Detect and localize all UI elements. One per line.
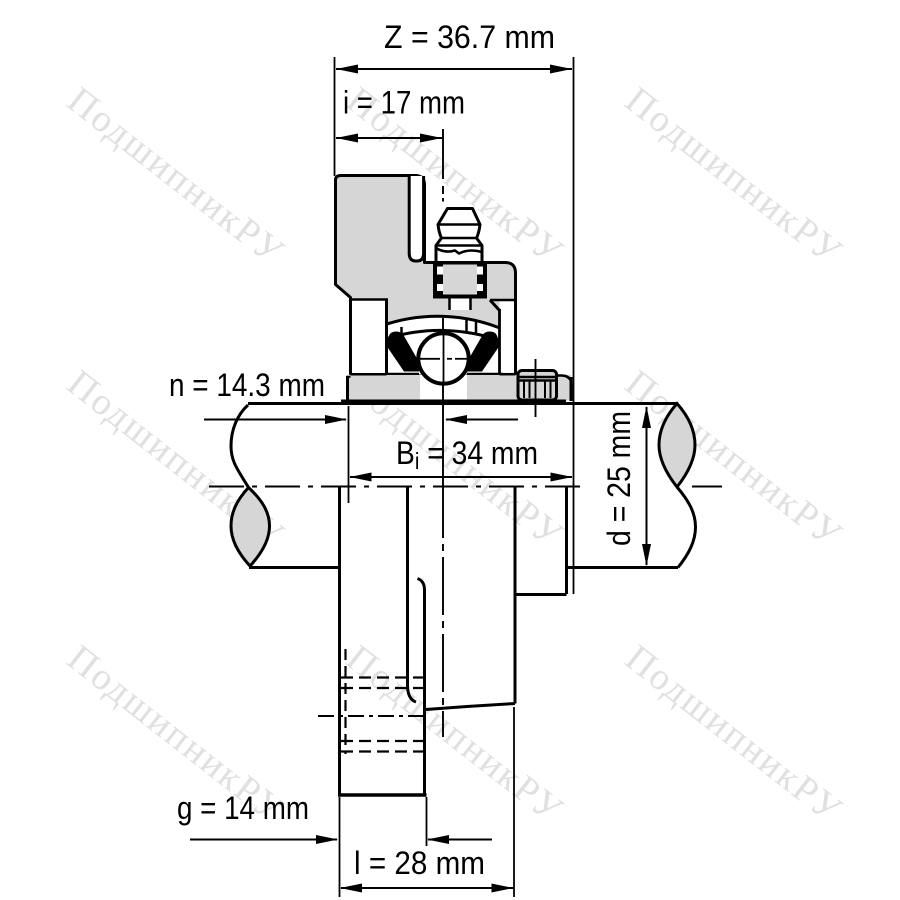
svg-text:Z = 36.7 mm: Z = 36.7 mm [384, 19, 555, 55]
svg-text:g = 14 mm: g = 14 mm [177, 790, 309, 826]
svg-text:l = 28 mm: l = 28 mm [354, 845, 485, 881]
svg-text:d = 25 mm: d = 25 mm [601, 411, 637, 546]
svg-text:i = 17 mm: i = 17 mm [343, 85, 465, 121]
svg-text:n = 14.3 mm: n = 14.3 mm [169, 367, 325, 403]
